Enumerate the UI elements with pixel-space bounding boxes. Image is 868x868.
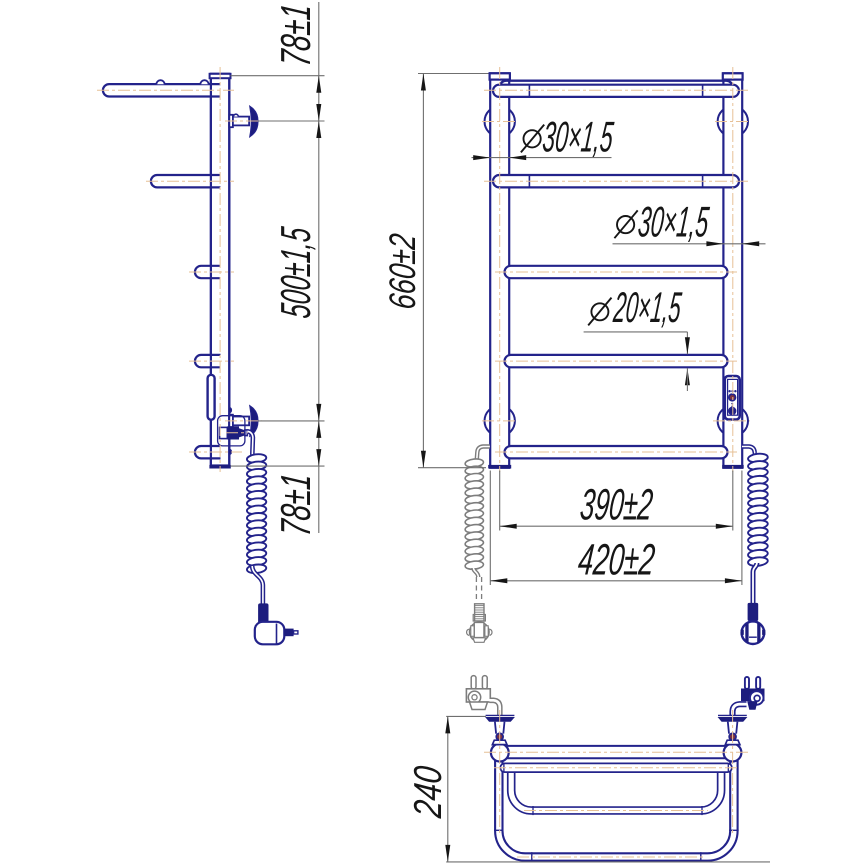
svg-text:78±1: 78±1 (272, 471, 319, 538)
svg-text:420±2: 420±2 (576, 536, 657, 585)
svg-text:78±1: 78±1 (272, 1, 319, 68)
svg-text:20×1,5: 20×1,5 (611, 284, 684, 332)
svg-text:500±1,5: 500±1,5 (272, 225, 319, 321)
svg-text:660±2: 660±2 (381, 231, 423, 311)
svg-text:390±2: 390±2 (578, 481, 655, 530)
svg-text:30×1,5: 30×1,5 (636, 199, 712, 247)
svg-text:30×1,5: 30×1,5 (540, 113, 616, 161)
svg-text:240: 240 (407, 764, 450, 820)
